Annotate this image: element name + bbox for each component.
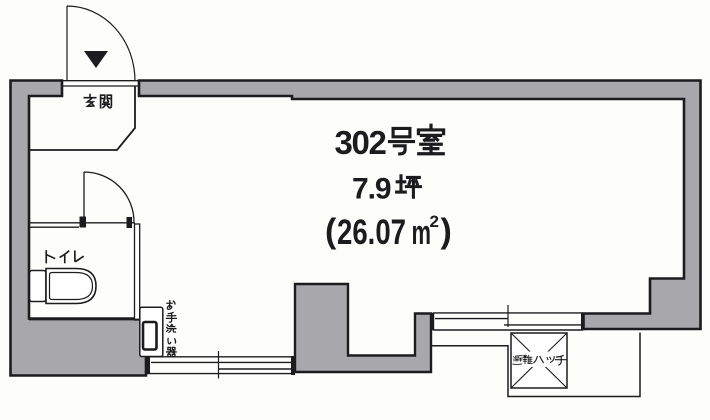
svg-text:2: 2 [430,212,439,231]
svg-text:(: ( [325,213,337,251]
svg-text:): ) [441,213,452,251]
svg-text:m: m [412,214,432,252]
svg-text:7.9: 7.9 [352,173,392,206]
svg-text:302: 302 [335,124,387,161]
svg-text:26.07: 26.07 [337,213,406,252]
